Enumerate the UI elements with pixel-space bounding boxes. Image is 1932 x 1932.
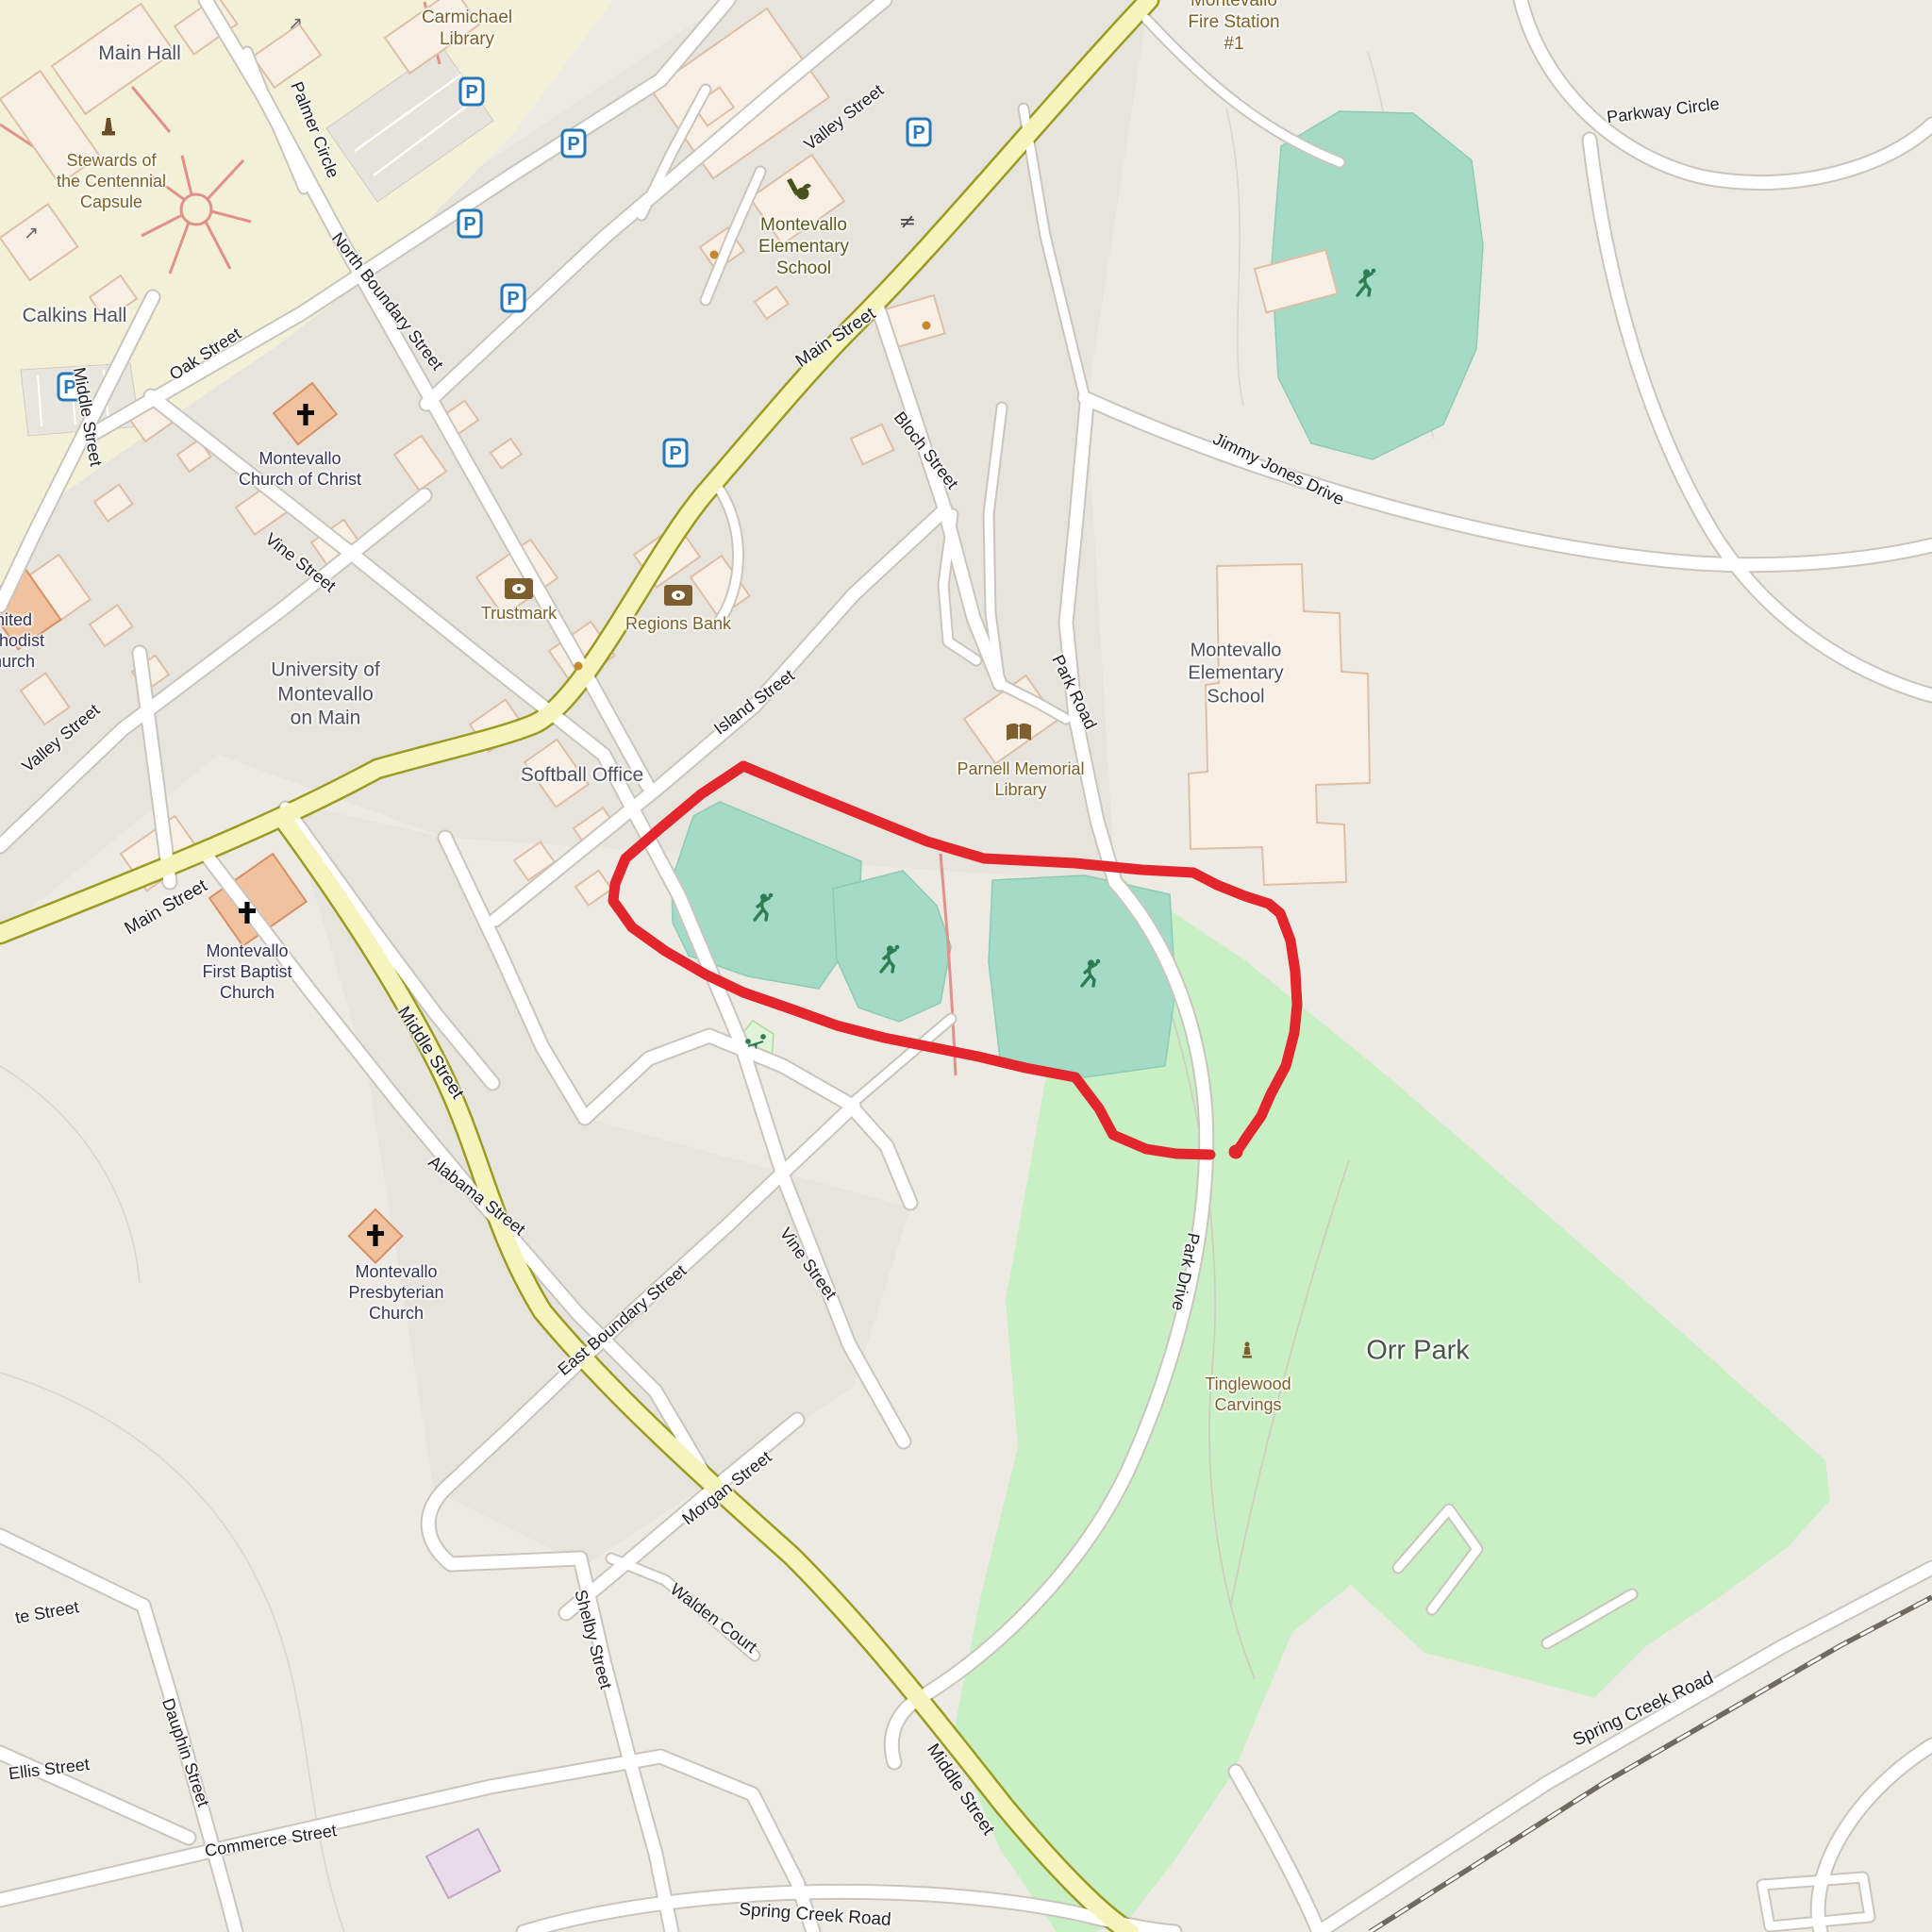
poi-dot-icon (923, 322, 931, 330)
parking-icon (562, 130, 585, 157)
parking-icon (502, 285, 525, 311)
poi-dot-icon (575, 662, 583, 671)
parking-icon (908, 119, 930, 145)
oneway-arrow-icon (24, 223, 39, 243)
poi-dot-icon (710, 251, 719, 259)
parking-icon (58, 374, 81, 400)
bank-icon (505, 578, 533, 599)
gate-icon (899, 210, 916, 234)
map-canvas[interactable]: P ≠ ↗ (0, 0, 1932, 1932)
route-endpoint-dot (1229, 1145, 1243, 1159)
bank-icon (664, 585, 692, 606)
oneway-arrow-icon (288, 13, 303, 34)
parking-icon (460, 78, 483, 105)
parking-icon (458, 210, 481, 237)
parking-icon (664, 440, 687, 466)
